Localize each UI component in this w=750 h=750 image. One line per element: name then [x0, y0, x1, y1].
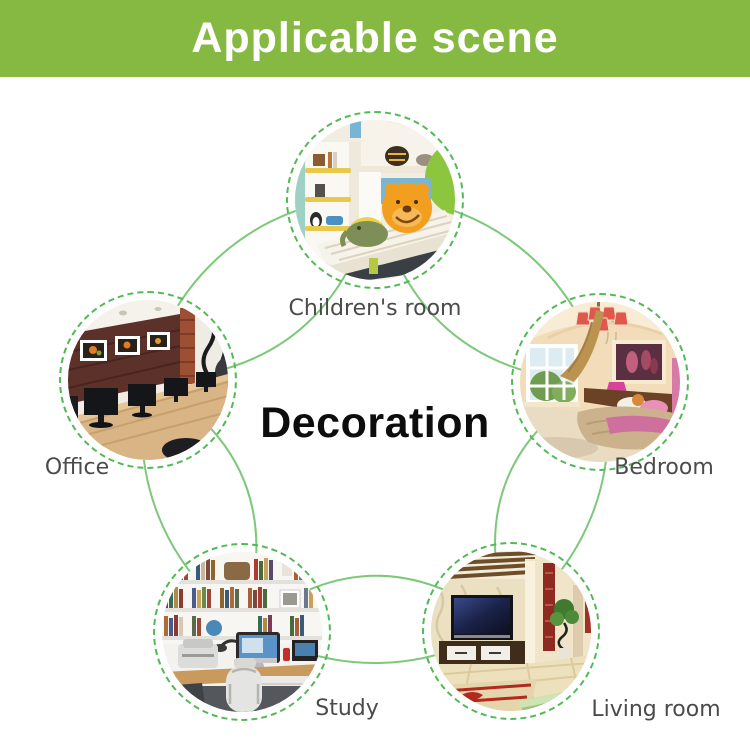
scene-label-childrens-room: Children's room — [289, 296, 462, 321]
living-room-illustration — [431, 551, 591, 711]
childrens-room-photo — [295, 120, 455, 280]
bedroom-illustration — [520, 302, 680, 462]
study-illustration — [162, 552, 322, 712]
scene-label-living-room: Living room — [591, 697, 720, 722]
office-photo — [68, 300, 228, 460]
study-photo — [162, 552, 322, 712]
scene-circle-bedroom — [511, 293, 689, 471]
office-illustration — [68, 300, 228, 460]
scene-label-office: Office — [45, 455, 109, 480]
scene-label-bedroom: Bedroom — [614, 455, 714, 480]
decoration-title: Decoration — [260, 399, 490, 448]
scene-circle-study — [153, 543, 331, 721]
scene-circle-living-room — [422, 542, 600, 720]
scene-label-study: Study — [315, 696, 379, 721]
bedroom-photo — [520, 302, 680, 462]
living-room-photo — [431, 551, 591, 711]
scene-circle-childrens-room — [286, 111, 464, 289]
childrens-room-illustration — [295, 120, 455, 280]
scene-circle-office — [59, 291, 237, 469]
